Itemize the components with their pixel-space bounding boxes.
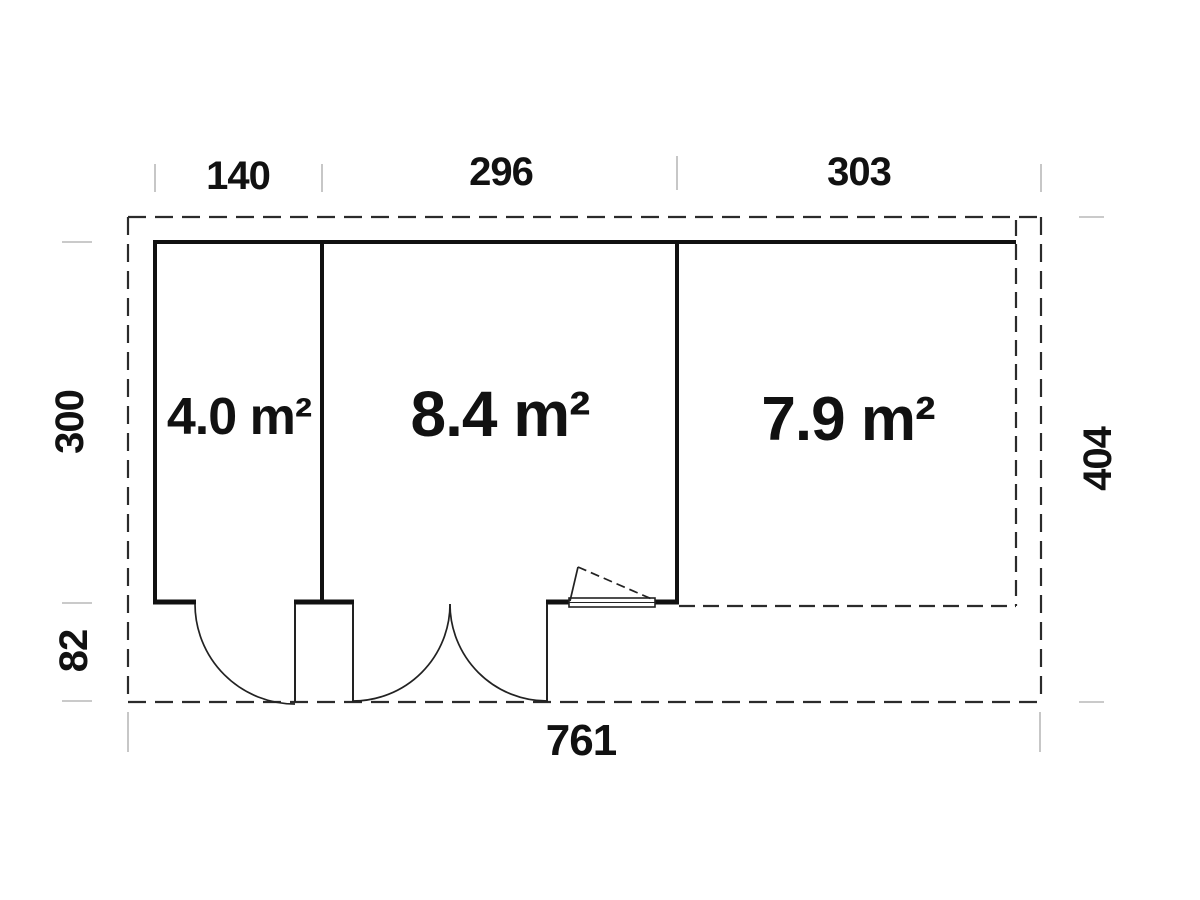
window-open-hinge-line	[570, 567, 578, 601]
double-door-right-swing	[450, 604, 547, 701]
dim-top-section-1: 140	[206, 156, 270, 196]
dim-top-section-3: 303	[827, 152, 891, 192]
room-2-area-label: 8.4 m²	[411, 382, 590, 446]
floor-plan-drawing	[0, 0, 1200, 900]
dimension-ticks	[62, 156, 1104, 752]
double-door-left-swing	[353, 604, 450, 701]
room-3-area-label: 7.9 m²	[761, 389, 934, 451]
window-open-swing-dashed	[578, 567, 654, 600]
dim-left-main-depth: 300	[50, 390, 90, 454]
dim-bottom-total-width: 761	[546, 719, 616, 763]
double-door	[353, 604, 547, 702]
roof-outline	[128, 217, 1041, 702]
dim-right-total-depth: 404	[1078, 427, 1118, 491]
single-door-swing	[195, 604, 295, 704]
dim-left-porch-depth: 82	[54, 630, 94, 673]
floor-plan: 140 296 303 300 82 404 761 4.0 m² 8.4 m²…	[0, 0, 1200, 900]
window	[569, 567, 655, 607]
single-door	[195, 604, 295, 704]
dim-top-section-2: 296	[469, 152, 533, 192]
room-1-area-label: 4.0 m²	[167, 391, 311, 443]
